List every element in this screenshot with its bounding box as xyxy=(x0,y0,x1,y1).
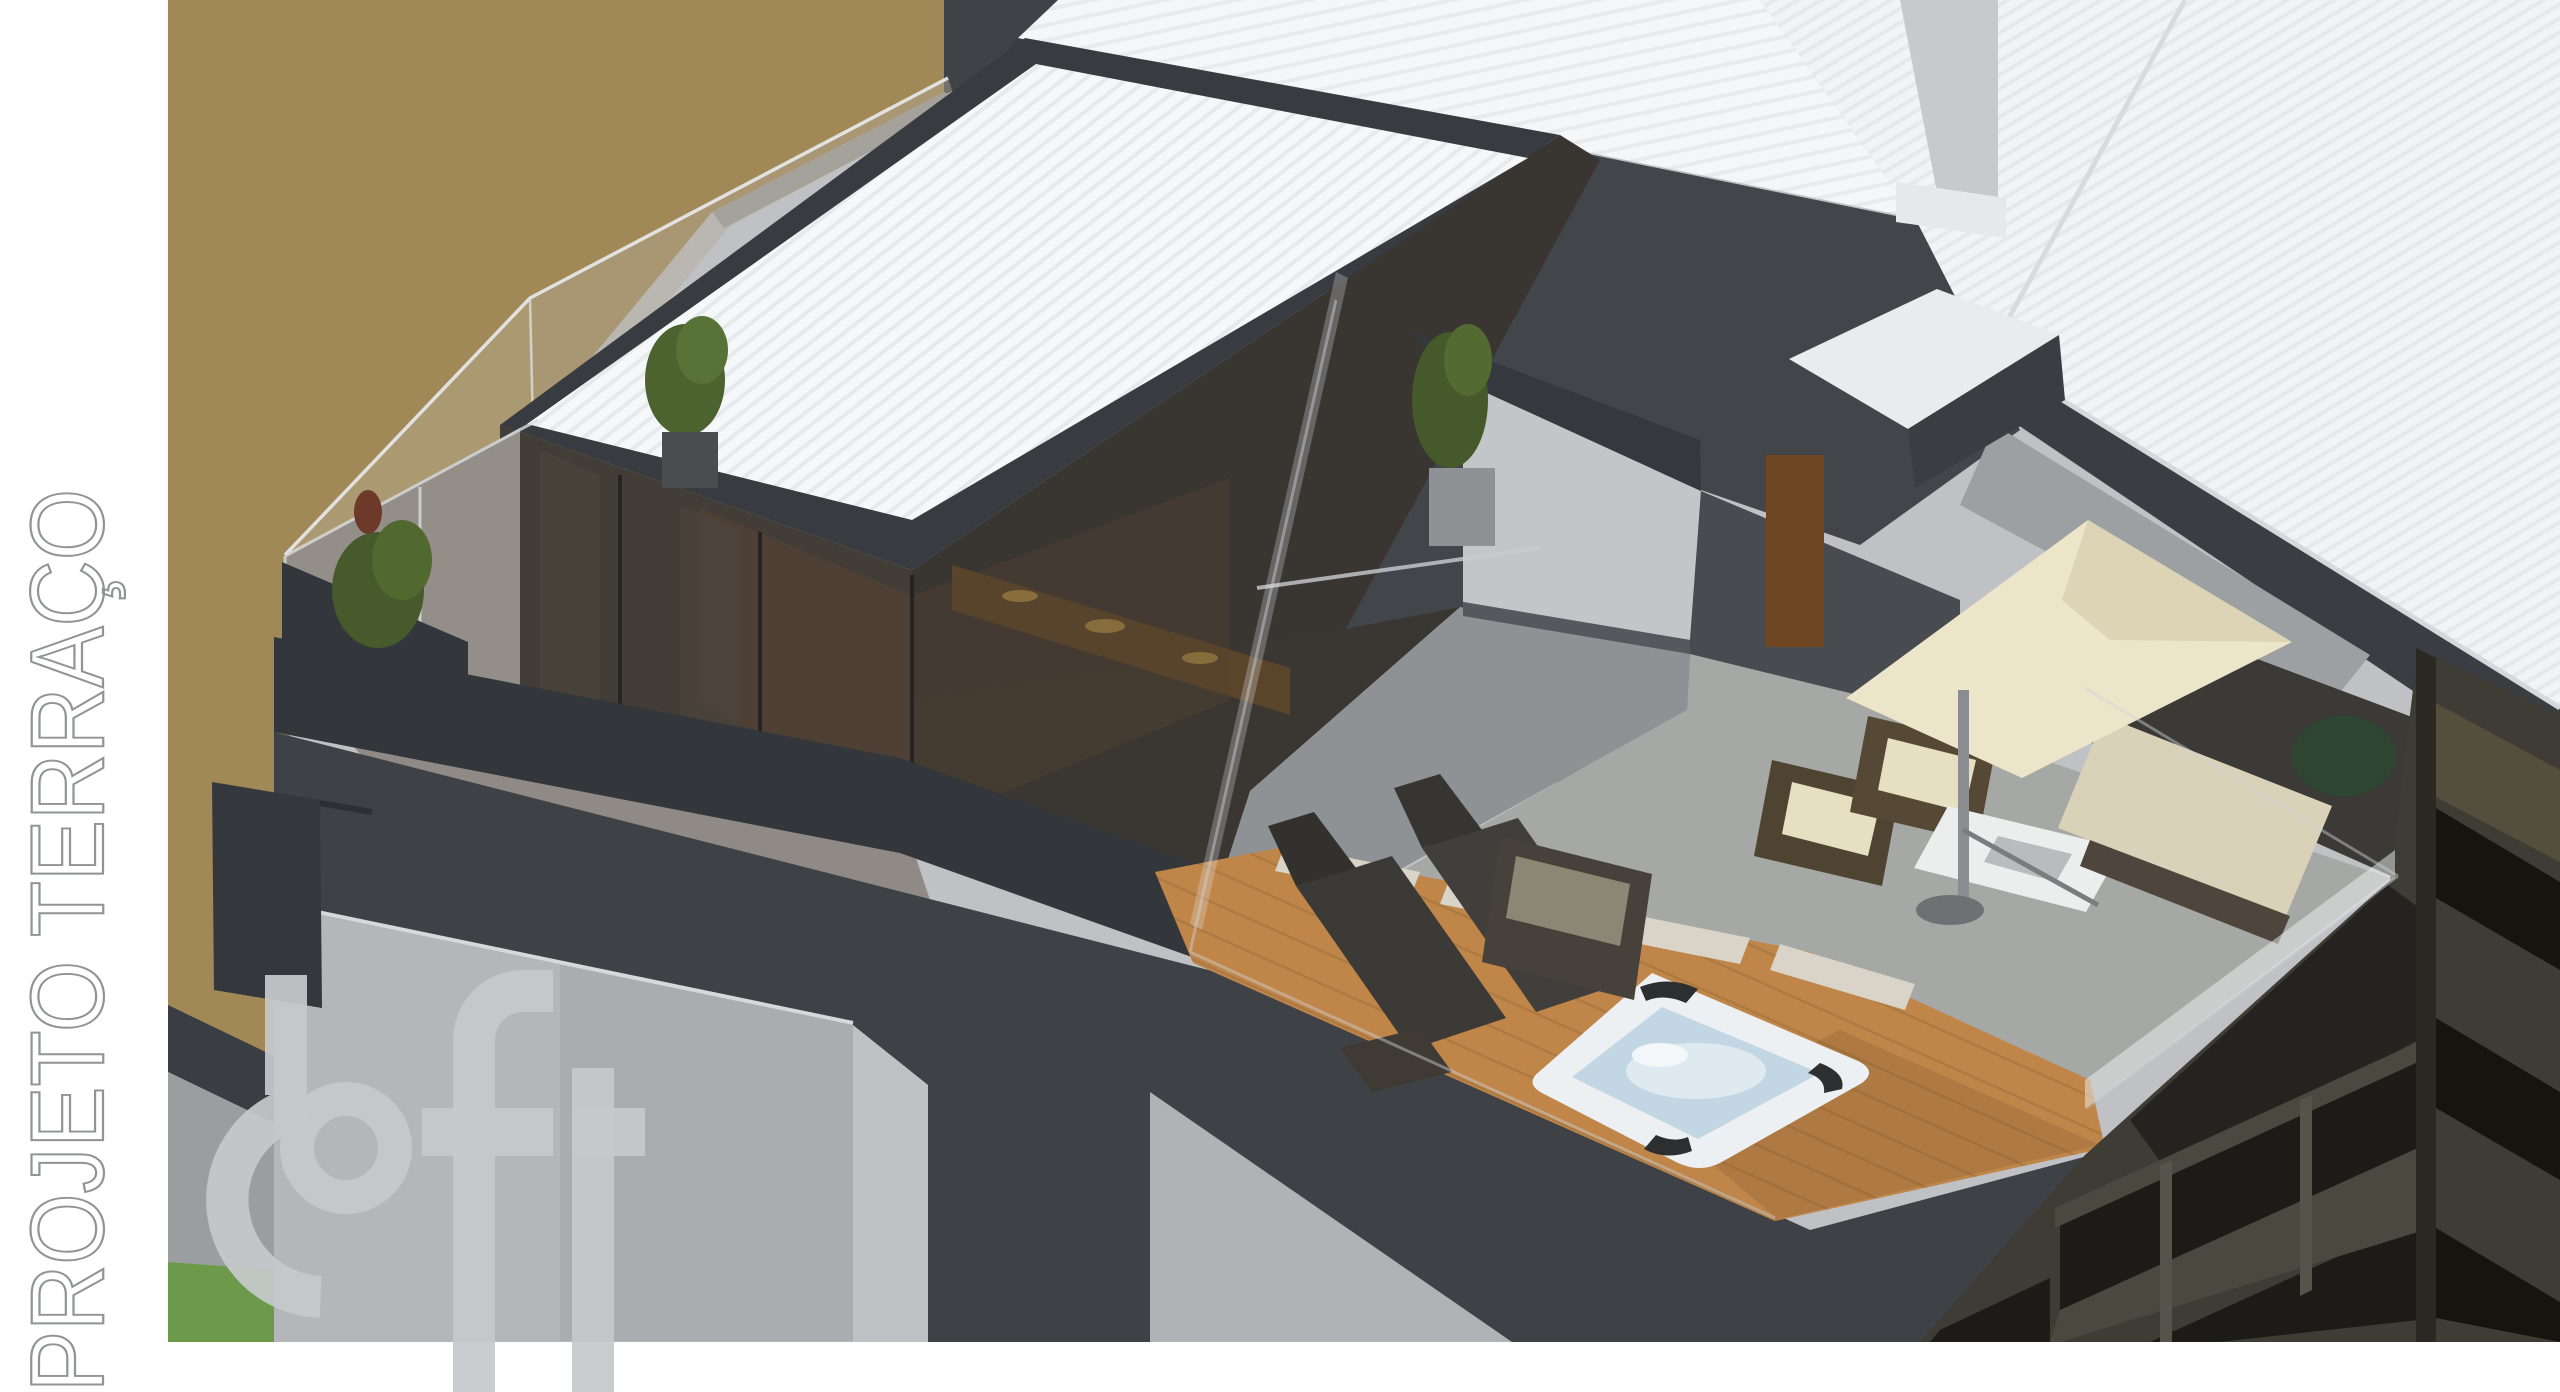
svg-text:PROJETO TERRAÇO: PROJETO TERRAÇO xyxy=(10,489,126,1392)
